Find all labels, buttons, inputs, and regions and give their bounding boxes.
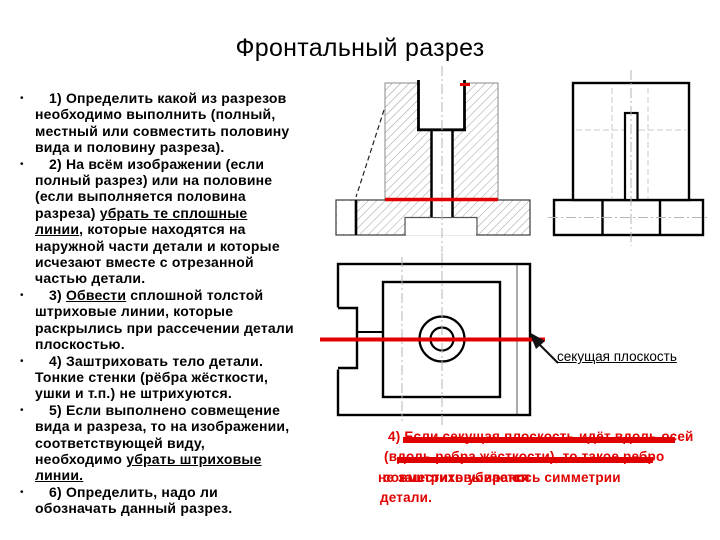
red-overlay-text: ось симметрии [516, 470, 621, 485]
dashed-diagonal-line [356, 110, 384, 197]
leader-line [538, 343, 558, 363]
instruction-item: •3) Обвести сплошной толстой штриховые л… [20, 287, 342, 353]
red-overlay-text: детали. [380, 490, 432, 505]
top-outline [338, 264, 530, 415]
t-slot-upper [420, 79, 464, 129]
notch-slot-lines [357, 332, 383, 341]
red-overlay-text: совместить убирают [383, 470, 527, 485]
instruction-list: •1) Определить какой из разрезов необход… [20, 90, 342, 517]
t-slot-channel-walls [432, 130, 453, 217]
side-body [573, 83, 689, 200]
bullet-icon: • [20, 484, 35, 517]
slide-title: Фронтальный разрез [0, 34, 720, 63]
hatched-base [336, 200, 530, 235]
inner-rect [383, 282, 500, 397]
side-slot [625, 113, 638, 200]
instruction-item: •2) На всём изображении (если полный раз… [20, 156, 342, 287]
t-slot-upper-walls [419, 80, 465, 129]
base-notch-outline [405, 218, 477, 236]
instruction-text: 3) Обвести сплошной толстой штриховые ли… [35, 287, 342, 353]
slide: Фронтальный разрез •1) Определить какой … [0, 0, 720, 540]
red-strike-bar [397, 457, 653, 463]
instruction-item: •6) Определить, надо ли обозначать данны… [20, 484, 342, 517]
outer-circle [420, 317, 465, 362]
instruction-text: 1) Определить какой из разрезов необходи… [35, 90, 342, 156]
instruction-text: 4) Заштриховать тело детали. Тонкие стен… [35, 353, 342, 402]
side-base [554, 200, 703, 235]
leader-arrowhead-icon [529, 332, 545, 349]
top-view [320, 253, 558, 426]
instruction-text: 2) На всём изображении (если полный разр… [35, 156, 342, 287]
instruction-text: 6) Определить, надо ли обозначать данный… [35, 484, 342, 517]
base-notch [406, 218, 476, 236]
bullet-icon: • [20, 353, 35, 402]
front-section-view [336, 66, 530, 252]
instruction-item: •5) Если выполнено совмещение вида и раз… [20, 402, 342, 484]
red-strike-bar [403, 437, 675, 443]
instruction-item: •1) Определить какой из разрезов необход… [20, 90, 342, 156]
inner-circle [431, 328, 454, 351]
hatched-body [385, 83, 498, 199]
bullet-icon: • [20, 156, 35, 287]
bullet-icon: • [20, 287, 35, 353]
cutting-plane-label: секущая плоскость [557, 349, 677, 364]
instruction-text: 5) Если выполнено совмещение вида и разр… [35, 402, 342, 484]
instruction-item: •4) Заштриховать тело детали. Тонкие сте… [20, 353, 342, 402]
side-view [548, 70, 708, 246]
bullet-icon: • [20, 402, 35, 484]
t-slot-channel [433, 130, 452, 217]
bullet-icon: • [20, 90, 35, 156]
